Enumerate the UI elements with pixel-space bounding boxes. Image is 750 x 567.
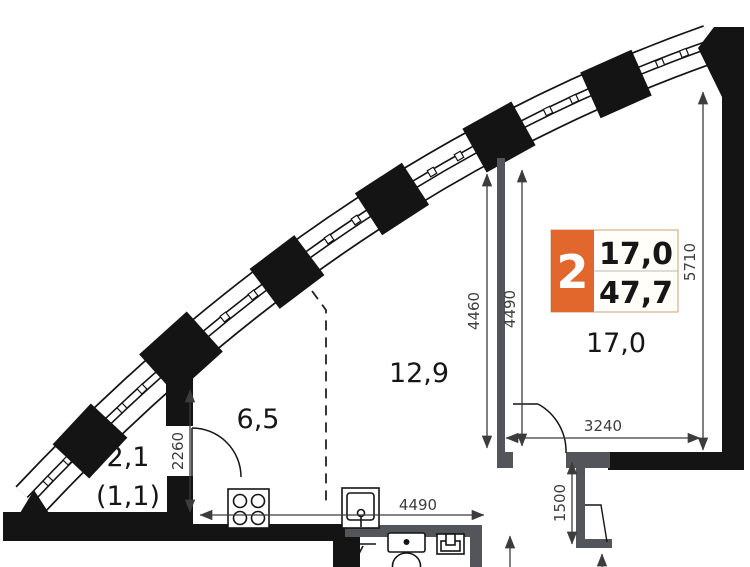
wall-loggia-bottom	[3, 512, 193, 541]
partition-bath-right	[470, 525, 482, 567]
floor-plan: 2260 4490 4460 4490 5710 3240 1500 2,1 (…	[0, 0, 750, 567]
toilet-icon	[388, 533, 425, 567]
badge-living-area: 17,0	[599, 237, 673, 272]
wall-loggia-stub-lower	[167, 476, 193, 541]
living-area-label: 12,9	[389, 358, 449, 389]
dim-label-niche-depth: 1500	[551, 484, 569, 522]
partition-niche-left	[576, 458, 585, 548]
dim-label-kitchen-width: 4490	[399, 496, 437, 514]
dim-label-bedroom-height-inner: 4490	[501, 290, 519, 328]
dim-label-living-height: 4460	[465, 292, 483, 330]
badge-total-area: 47,7	[599, 276, 673, 311]
partition-bedroom-door-jamb	[497, 452, 513, 468]
bedroom-area-label: 17,0	[586, 328, 646, 359]
washbasin-icon	[437, 534, 464, 554]
loggia-area-label: 2,1	[107, 442, 150, 473]
badge-rooms-count: 2	[556, 245, 588, 299]
apartment-type-badge: 2 17,0 47,7	[551, 230, 678, 312]
loggia-door-swing-arc	[192, 428, 241, 477]
dim-label-bedroom-width: 3240	[584, 417, 622, 435]
dim-label-loggia-depth: 2260	[169, 432, 187, 470]
wall-loggia-stub-upper	[166, 350, 193, 426]
floor-plan-page: 2260 4490 4460 4490 5710 3240 1500 2,1 (…	[0, 0, 750, 567]
wardrobe-icon	[585, 505, 607, 542]
zone-divider-dashed-line	[312, 291, 326, 505]
bedroom-door-swing-arc	[538, 404, 566, 453]
kitchen-fixtures	[228, 488, 379, 528]
kitchen-area-label: 6,5	[237, 404, 280, 435]
loggia-area-reduced-label: (1,1)	[96, 481, 160, 512]
dim-label-bedroom-height-outer: 5710	[681, 243, 699, 281]
stove-icon	[228, 489, 269, 528]
kitchen-sink-icon	[342, 488, 379, 528]
